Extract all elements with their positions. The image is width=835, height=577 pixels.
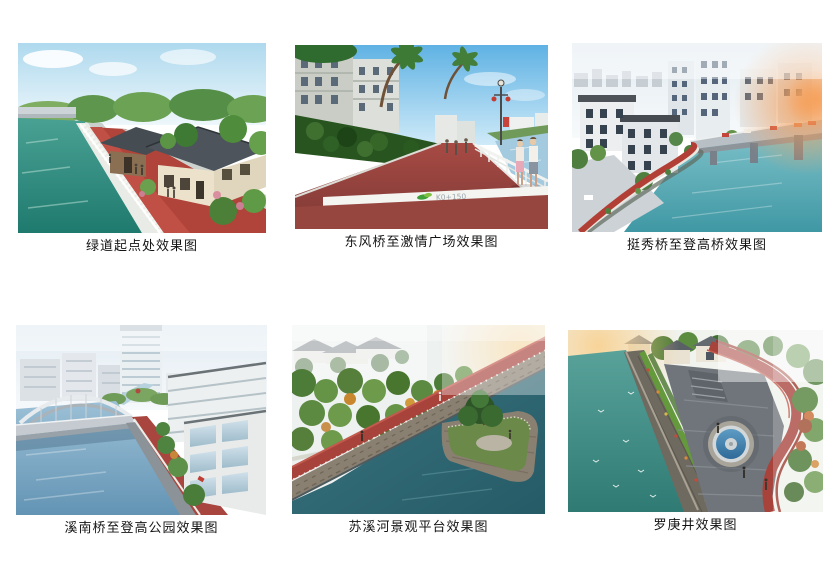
haze bbox=[572, 43, 822, 79]
figure-suxi-river-platform: 苏溪河景观平台效果图 bbox=[292, 325, 545, 535]
figure-xinan-bridge-denggao-park: 溪南桥至登高公园效果图 bbox=[16, 325, 267, 536]
luogeng-well-image bbox=[568, 330, 823, 512]
figure-luogeng-well: 罗庚井效果图 bbox=[568, 330, 823, 533]
distant-bridge bbox=[18, 107, 76, 118]
caption-xinan-bridge-denggao-park: 溪南桥至登高公园效果图 bbox=[16, 521, 267, 536]
haze bbox=[16, 325, 267, 351]
figure-greenway-start: 绿道起点处效果图 bbox=[18, 43, 266, 254]
caption-luogeng-well: 罗庚井效果图 bbox=[568, 518, 823, 533]
caption-tingxiu-denggao-bridge: 挺秀桥至登高桥效果图 bbox=[572, 238, 822, 253]
greenway-start-image bbox=[18, 43, 266, 233]
dongfeng-bridge-plaza-image: K0+150 bbox=[295, 45, 548, 229]
figure-dongfeng-bridge-plaza: K0+150 东风桥至激情广场效果图 bbox=[295, 45, 548, 250]
suxi-river-platform-image bbox=[292, 325, 545, 514]
caption-suxi-river-platform: 苏溪河景观平台效果图 bbox=[292, 520, 545, 535]
document-page: 绿道起点处效果图 bbox=[0, 0, 835, 577]
xinan-bridge-denggao-park-image bbox=[16, 325, 267, 515]
figure-tingxiu-denggao-bridge: 挺秀桥至登高桥效果图 bbox=[572, 43, 822, 253]
circular-well bbox=[703, 416, 759, 472]
tingxiu-denggao-bridge-image bbox=[572, 43, 822, 232]
caption-dongfeng-bridge-plaza: 东风桥至激情广场效果图 bbox=[295, 235, 548, 250]
caption-greenway-start: 绿道起点处效果图 bbox=[18, 239, 266, 254]
